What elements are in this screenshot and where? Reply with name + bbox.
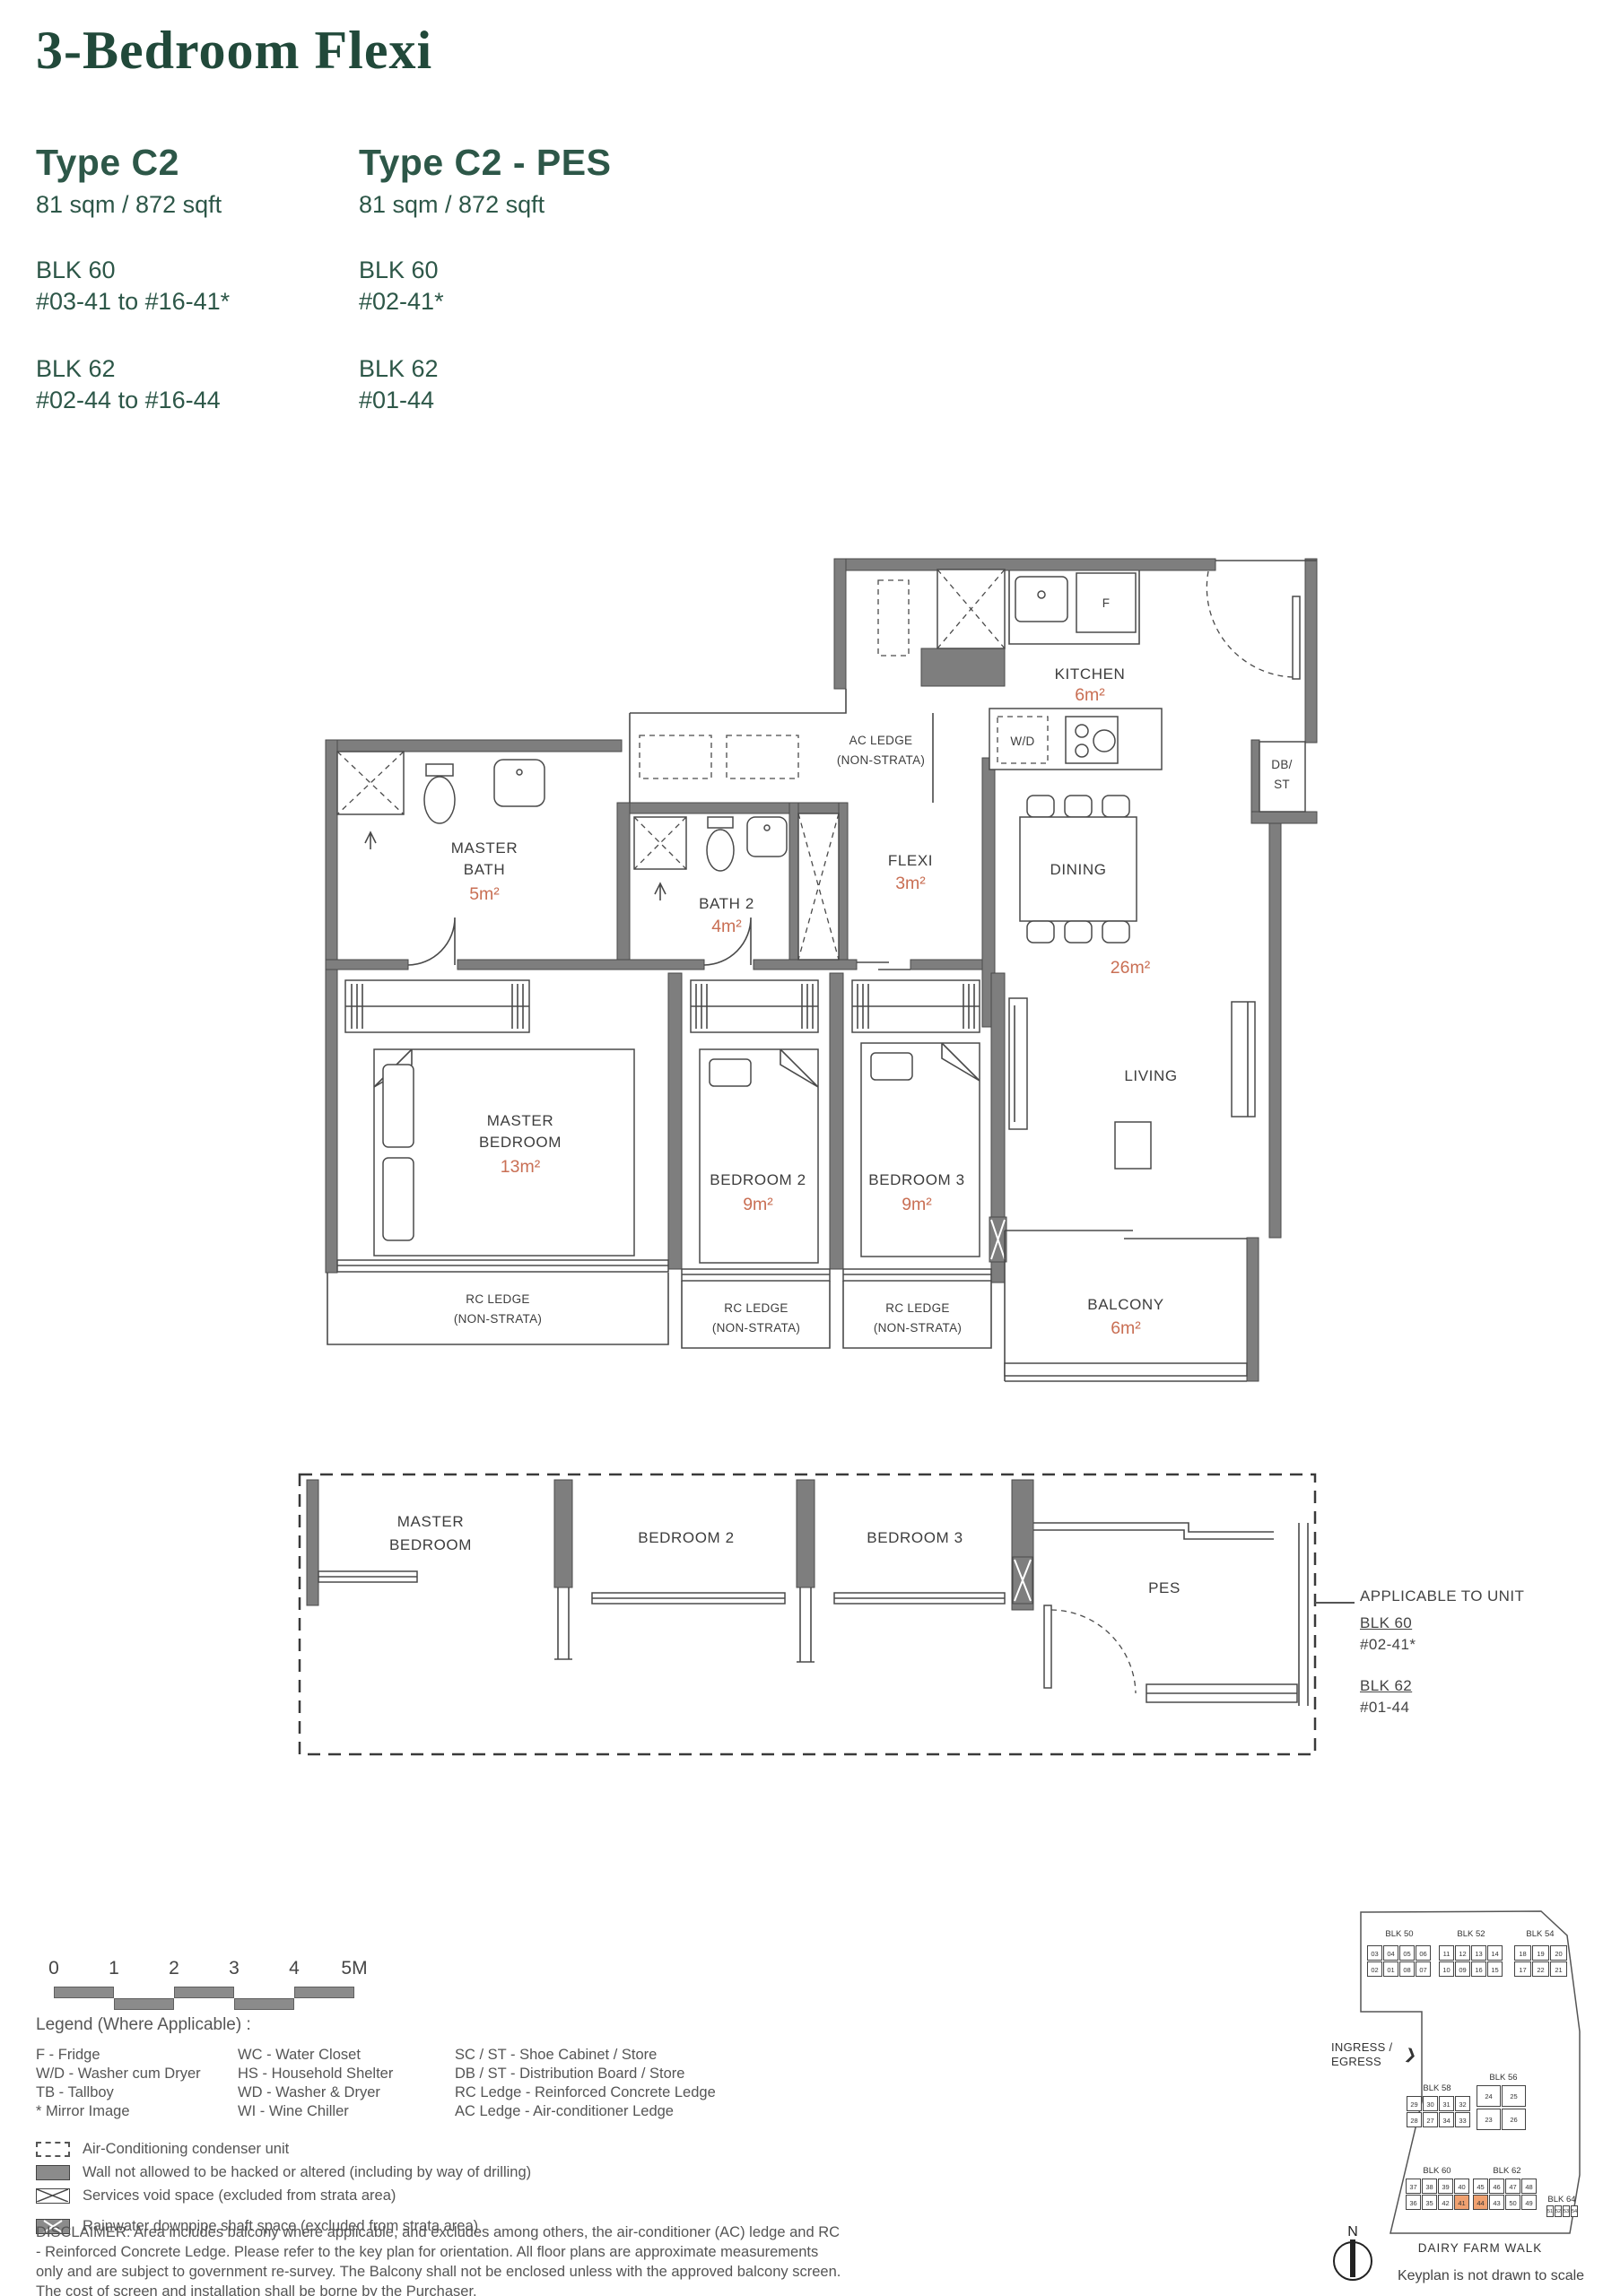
keyplan-unit-35: 35 <box>1422 2195 1437 2210</box>
keyplan-unit-04: 04 <box>1383 1945 1398 1961</box>
master-bath-area: 5m² <box>469 884 500 904</box>
keyplan-unit-25: 25 <box>1502 2085 1526 2107</box>
legend-item: WD - Washer & Dryer <box>238 2083 455 2102</box>
north-arrow-icon: N <box>1328 2222 1381 2293</box>
keyplan-unit-43: 43 <box>1489 2195 1504 2210</box>
keyplan-ingress-egress: INGRESS / EGRESS <box>1331 2040 1392 2069</box>
keyplan-unit-13: 13 <box>1471 1945 1486 1961</box>
type-c2-column: Type C2 81 sqm / 872 sqft BLK 60 #03-41 … <box>36 142 341 416</box>
keyplan-unit-39: 39 <box>1438 2179 1453 2194</box>
keyplan-unit-18: 18 <box>1514 1945 1531 1961</box>
entrance-door <box>1207 571 1300 679</box>
legend-columns: F - Fridge W/D - Washer cum Dryer TB - T… <box>36 2046 879 2121</box>
blk-group: BLK 62 #02-44 to #16-44 <box>36 353 341 416</box>
blk-label: BLK 62 <box>36 353 341 385</box>
flexi-label: FLEXI <box>888 852 933 869</box>
blk-group: BLK 60 #03-41 to #16-41* <box>36 255 341 317</box>
services-void <box>798 813 839 960</box>
legend-item: F - Fridge <box>36 2046 238 2065</box>
ingress-line1: INGRESS / <box>1331 2040 1392 2055</box>
scale-segment <box>294 1987 354 1998</box>
blk-units: #02-44 to #16-44 <box>36 385 341 416</box>
blk-label: BLK 62 <box>359 353 664 385</box>
keyplan-unit-33: 33 <box>1455 2112 1470 2127</box>
legend-symbol-row: Services void space (excluded from strat… <box>36 2187 879 2205</box>
legend-item: HS - Household Shelter <box>238 2065 455 2083</box>
pes-floorplan: MASTER BEDROOM BEDROOM 2 BEDROOM 3 PES <box>296 1471 1319 1758</box>
keyplan-unit-06: 06 <box>1416 1945 1431 1961</box>
keyplan-unit-50: 50 <box>1505 2195 1520 2210</box>
living-dining-area: 26m² <box>1111 958 1151 978</box>
keyplan-unit-49: 49 <box>1521 2195 1537 2210</box>
keyplan-unit-53: 53 <box>1563 2205 1570 2217</box>
ac-ledge: AC LEDGE (NON-STRATA) <box>630 689 933 803</box>
balcony: BALCONY 6m² <box>1005 1231 1247 1381</box>
fridge-label: F <box>1102 596 1111 610</box>
pes-terrace <box>1033 1523 1308 1706</box>
applicable-unit2: #01-44 <box>1360 1697 1524 1718</box>
applicable-blk1: BLK 60 <box>1360 1613 1524 1634</box>
dining-label: DINING <box>1050 861 1106 878</box>
bedroom3-label: BEDROOM 3 <box>868 1171 964 1188</box>
keyplan-unit-44: 44 <box>1473 2195 1488 2210</box>
legend-symbol-label: Wall not allowed to be hacked or altered… <box>83 2164 531 2181</box>
keyplan-unit-47: 47 <box>1505 2179 1520 2194</box>
type-c2-pes-column: Type C2 - PES 81 sqm / 872 sqft BLK 60 #… <box>359 142 664 416</box>
applicable-note: APPLICABLE TO UNIT BLK 60 #02-41* BLK 62… <box>1360 1586 1524 1718</box>
rc-ledge-label: (NON-STRATA) <box>874 1321 962 1335</box>
scale-tick: 5M <box>335 1958 374 1979</box>
bedroom2: BEDROOM 2 9m² <box>691 980 818 1263</box>
scale-tick: 2 <box>154 1958 194 1979</box>
rc-ledge-label: RC LEDGE <box>466 1292 529 1306</box>
keyplan-unit-02: 02 <box>1367 1961 1382 1977</box>
legend-item: SC / ST - Shoe Cabinet / Store <box>455 2046 879 2065</box>
keyplan-unit-48: 48 <box>1521 2179 1537 2194</box>
scale-tick: 3 <box>214 1958 254 1979</box>
legend-col1: F - Fridge W/D - Washer cum Dryer TB - T… <box>36 2046 238 2121</box>
keyplan-unit-15: 15 <box>1487 1961 1503 1977</box>
blk-units: #02-41* <box>359 286 664 317</box>
keyplan-unit-10: 10 <box>1439 1961 1454 1977</box>
keyplan-block-label: BLK 52 <box>1457 1929 1485 1939</box>
bath2: BATH 2 4m² <box>634 817 787 936</box>
scale-bar: 0 1 2 3 4 5M <box>47 1958 388 2021</box>
balcony-label: BALCONY <box>1087 1296 1163 1313</box>
dining-set: DINING <box>1020 796 1137 943</box>
keyplan-unit-19: 19 <box>1532 1945 1549 1961</box>
legend-heading: Legend (Where Applicable) : <box>36 2015 879 2035</box>
keyplan-unit-11: 11 <box>1439 1945 1454 1961</box>
keyplan-unit-09: 09 <box>1455 1961 1470 1977</box>
disclaimer: DISCLAIMER: Area includes balcony where … <box>36 2222 843 2296</box>
legend-item: WI - Wine Chiller <box>238 2102 455 2121</box>
master-bedroom-area: 13m² <box>501 1157 541 1177</box>
keyplan-unit-40: 40 <box>1454 2179 1469 2194</box>
type-area: 81 sqm / 872 sqft <box>36 191 341 219</box>
legend-col3: SC / ST - Shoe Cabinet / Store DB / ST -… <box>455 2046 879 2121</box>
keyplan-block-label: BLK 50 <box>1385 1929 1413 1939</box>
kitchen-label: KITCHEN <box>1055 665 1126 683</box>
keyplan-unit-28: 28 <box>1407 2112 1422 2127</box>
pes-master-bedroom-line1: MASTER <box>397 1513 464 1530</box>
rc-ledges: RC LEDGE (NON-STRATA) RC LEDGE (NON-STRA… <box>327 1260 991 1348</box>
keyplan-unit-27: 27 <box>1423 2112 1438 2127</box>
walls <box>326 559 1317 1381</box>
keyplan-unit-01: 01 <box>1383 1961 1398 1977</box>
keyplan-unit-12: 12 <box>1455 1945 1470 1961</box>
keyplan-unit-05: 05 <box>1399 1945 1415 1961</box>
legend-col2: WC - Water Closet HS - Household Shelter… <box>238 2046 455 2121</box>
legend-item: RC Ledge - Reinforced Concrete Ledge <box>455 2083 879 2102</box>
master-bath-line1: MASTER <box>451 839 518 857</box>
db-st-closet: DB/ ST <box>1259 742 1305 812</box>
rc-ledge-label: (NON-STRATA) <box>712 1321 800 1335</box>
keyplan-unit-03: 03 <box>1367 1945 1382 1961</box>
blk-units: #03-41 to #16-41* <box>36 286 341 317</box>
keyplan-unit-42: 42 <box>1438 2195 1453 2210</box>
kitchen-area: 6m² <box>1075 685 1105 705</box>
scale-tick: 1 <box>94 1958 134 1979</box>
keyplan-unit-21: 21 <box>1550 1961 1567 1977</box>
applicable-blk2: BLK 62 <box>1360 1675 1524 1697</box>
db-st-line1: DB/ <box>1271 758 1292 771</box>
pes-windows <box>318 1571 1005 1662</box>
keyplan-unit-46: 46 <box>1489 2179 1504 2194</box>
keyplan-block-label: BLK 60 <box>1423 2166 1451 2176</box>
rc-ledge-label: (NON-STRATA) <box>454 1312 542 1326</box>
keyplan: BLK 500304050602010807BLK 52111213141009… <box>1328 1870 1603 2296</box>
legend-item: TB - Tallboy <box>36 2083 238 2102</box>
keyplan-unit-36: 36 <box>1406 2195 1421 2210</box>
legend-symbols: Air-Conditioning condenser unit Wall not… <box>36 2141 879 2235</box>
blk-label: BLK 60 <box>36 255 341 286</box>
balcony-area: 6m² <box>1111 1318 1141 1338</box>
keyplan-unit-14: 14 <box>1487 1945 1503 1961</box>
applicable-unit1: #02-41* <box>1360 1634 1524 1656</box>
master-bedroom: MASTER BEDROOM 13m² <box>345 980 634 1256</box>
washer-dryer-label: W/D <box>1010 735 1034 748</box>
keyplan-unit-31: 31 <box>1439 2096 1454 2111</box>
north-letter: N <box>1347 2224 1358 2239</box>
ac-condenser-icon <box>36 2142 70 2157</box>
keyplan-unit-16: 16 <box>1471 1961 1486 1977</box>
keyplan-unit-20: 20 <box>1550 1945 1567 1961</box>
living-furniture: LIVING <box>1009 998 1255 1169</box>
rc-ledge-label: RC LEDGE <box>885 1301 949 1315</box>
keyplan-block-label: BLK 58 <box>1423 2083 1451 2093</box>
flexi-area: 3m² <box>895 874 926 893</box>
keyplan-block-label: BLK 62 <box>1493 2166 1520 2176</box>
floorplan-page: 3-Bedroom Flexi Type C2 81 sqm / 872 sqf… <box>0 0 1603 2296</box>
applicable-title: APPLICABLE TO UNIT <box>1360 1586 1524 1607</box>
keyplan-unit-52: 52 <box>1555 2205 1562 2217</box>
rc-ledge-label: RC LEDGE <box>724 1301 788 1315</box>
bath2-area: 4m² <box>711 917 742 936</box>
pes-rainwater-shaft <box>1013 1557 1032 1604</box>
bedroom3: BEDROOM 3 9m² <box>852 980 980 1257</box>
keyplan-unit-54: 54 <box>1571 2205 1578 2217</box>
keyplan-unit-29: 29 <box>1407 2096 1422 2111</box>
type-area: 81 sqm / 872 sqft <box>359 191 664 219</box>
type-name: Type C2 - PES <box>359 142 664 184</box>
leader-line <box>1315 1602 1355 1604</box>
keyplan-unit-38: 38 <box>1422 2179 1437 2194</box>
ingress-line2: EGRESS <box>1331 2055 1392 2069</box>
legend-item: * Mirror Image <box>36 2102 238 2121</box>
keyplan-unit-45: 45 <box>1473 2179 1488 2194</box>
pes-master-bedroom-line2: BEDROOM <box>389 1536 472 1553</box>
legend-item: DB / ST - Distribution Board / Store <box>455 2065 879 2083</box>
ac-ledge-line1: AC LEDGE <box>849 734 913 747</box>
page-title: 3-Bedroom Flexi <box>36 20 432 82</box>
master-bath-line2: BATH <box>464 861 505 878</box>
keyplan-unit-08: 08 <box>1399 1961 1415 1977</box>
legend-symbol-row: Wall not allowed to be hacked or altered… <box>36 2164 879 2181</box>
legend-item: AC Ledge - Air-conditioner Ledge <box>455 2102 879 2121</box>
main-floorplan: F W/D KITCHEN 6m² DB/ ST AC LEDGE (NON-S… <box>318 552 1323 1395</box>
legend-symbol-label: Air-Conditioning condenser unit <box>83 2141 289 2158</box>
keyplan-unit-51: 51 <box>1546 2205 1554 2217</box>
legend-symbol-row: Air-Conditioning condenser unit <box>36 2141 879 2158</box>
scale-segment <box>54 1987 114 1998</box>
keyplan-unit-30: 30 <box>1423 2096 1438 2111</box>
keyplan-unit-22: 22 <box>1532 1961 1549 1977</box>
keyplan-unit-17: 17 <box>1514 1961 1531 1977</box>
keyplan-note: Keyplan is not drawn to scale <box>1383 2268 1599 2284</box>
master-bedroom-line2: BEDROOM <box>479 1134 562 1151</box>
bath2-label: BATH 2 <box>699 895 754 912</box>
pes-bedroom3-label: BEDROOM 3 <box>867 1529 963 1546</box>
bedroom2-label: BEDROOM 2 <box>710 1171 806 1188</box>
keyplan-street-label: DAIRY FARM WALK <box>1408 2241 1552 2255</box>
scale-tick: 4 <box>274 1958 314 1979</box>
rainwater-shaft <box>989 1217 1006 1262</box>
keyplan-unit-26: 26 <box>1502 2109 1526 2130</box>
keyplan-unit-23: 23 <box>1477 2109 1501 2130</box>
legend: Legend (Where Applicable) : F - Fridge W… <box>36 2015 879 2235</box>
db-st-line2: ST <box>1274 778 1290 791</box>
blk-units: #01-44 <box>359 385 664 416</box>
no-hack-wall-icon <box>36 2165 70 2180</box>
keyplan-unit-37: 37 <box>1406 2179 1421 2194</box>
keyplan-unit-34: 34 <box>1439 2112 1454 2127</box>
scale-tick: 0 <box>34 1958 74 1979</box>
blk-label: BLK 60 <box>359 255 664 286</box>
scale-segment <box>234 1998 294 2010</box>
scale-segment <box>114 1998 174 2010</box>
pes-bedroom2-label: BEDROOM 2 <box>638 1529 734 1546</box>
keyplan-unit-32: 32 <box>1455 2096 1470 2111</box>
bedroom2-area: 9m² <box>743 1195 773 1214</box>
ac-ledge-line2: (NON-STRATA) <box>837 753 925 767</box>
keyplan-unit-41: 41 <box>1454 2195 1469 2210</box>
keyplan-block-label: BLK 54 <box>1526 1929 1554 1939</box>
scale-segment <box>174 1987 234 1998</box>
living-label: LIVING <box>1124 1067 1177 1084</box>
blk-group: BLK 62 #01-44 <box>359 353 664 416</box>
legend-item: W/D - Washer cum Dryer <box>36 2065 238 2083</box>
blk-group: BLK 60 #02-41* <box>359 255 664 317</box>
legend-symbol-label: Services void space (excluded from strat… <box>83 2187 396 2205</box>
keyplan-block-label: BLK 56 <box>1489 2073 1517 2083</box>
services-void-icon <box>36 2188 70 2204</box>
master-bath: MASTER BATH 5m² <box>337 752 544 904</box>
pes-label: PES <box>1148 1579 1180 1596</box>
type-name: Type C2 <box>36 142 341 184</box>
keyplan-unit-07: 07 <box>1416 1961 1431 1977</box>
keyplan-unit-24: 24 <box>1477 2085 1501 2107</box>
keyplan-block-label: BLK 64 <box>1547 2195 1575 2205</box>
legend-item: WC - Water Closet <box>238 2046 455 2065</box>
bedroom3-area: 9m² <box>902 1195 932 1214</box>
master-bedroom-line1: MASTER <box>487 1112 553 1129</box>
